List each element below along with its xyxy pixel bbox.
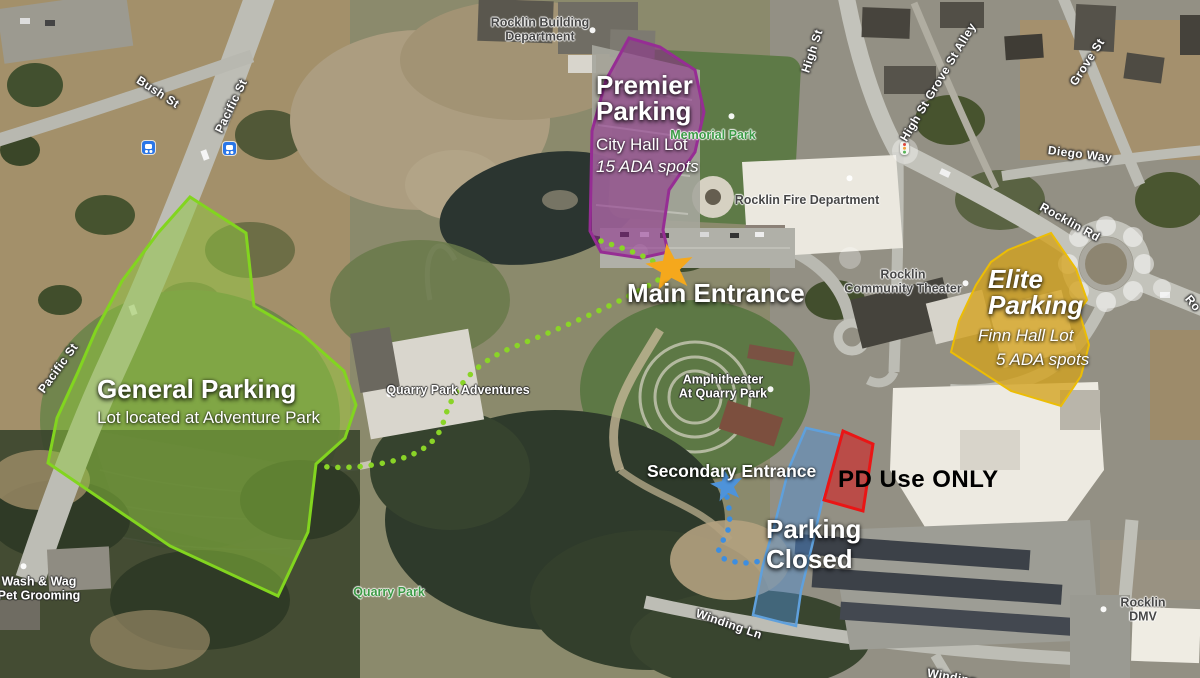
poi-wash-wag: Wash & Wag Pet Grooming [0, 575, 80, 604]
parking-map: Bush St Pacific St Pacific St High St Hi… [0, 0, 1200, 678]
elite-parking-label: Elite Parking Finn Hall Lot 5 ADA spots [988, 266, 1128, 371]
dmv-pin [1096, 601, 1111, 616]
premier-parking-ada: 15 ADA spots [596, 157, 771, 177]
poi-rocklin-dmv: Rocklin DMV [1115, 596, 1172, 625]
general-parking-title: General Parking [97, 376, 320, 402]
parking-closed-label: Parking Closed [766, 514, 884, 574]
poi-quarry-park-adventures: Quarry Park Adventures [386, 383, 529, 397]
bus-stop-icon [142, 141, 155, 154]
elite-parking-subtitle: Finn Hall Lot [978, 326, 1128, 346]
bus-stop-icon [223, 142, 236, 155]
poi-quarry-park: Quarry Park [353, 585, 425, 599]
pd-use-only-label: PD Use ONLY [838, 466, 999, 494]
premier-parking-subtitle: City Hall Lot [596, 135, 771, 155]
main-entrance-label: Main Entrance [627, 278, 805, 309]
elite-parking-title: Elite Parking [988, 266, 1108, 318]
poi-amphitheater: Amphitheater At Quarry Park [679, 373, 767, 402]
secondary-entrance-label: Secondary Entrance [647, 461, 816, 482]
premier-parking-label: Premier Parking City Hall Lot 15 ADA spo… [596, 72, 771, 178]
general-parking-label: General Parking Lot located at Adventure… [97, 376, 320, 428]
premier-parking-title: Premier Parking [596, 72, 746, 124]
elite-parking-ada: 5 ADA spots [996, 350, 1128, 370]
poi-community-theater: Rocklin Community Theater [844, 268, 961, 297]
poi-fire-department: Rocklin Fire Department [735, 193, 879, 207]
wash-wag-pin [16, 558, 31, 573]
fire-department-pin [842, 170, 857, 185]
general-parking-subtitle: Lot located at Adventure Park [97, 408, 320, 428]
poi-building-department: Rocklin Building Department [491, 16, 590, 45]
